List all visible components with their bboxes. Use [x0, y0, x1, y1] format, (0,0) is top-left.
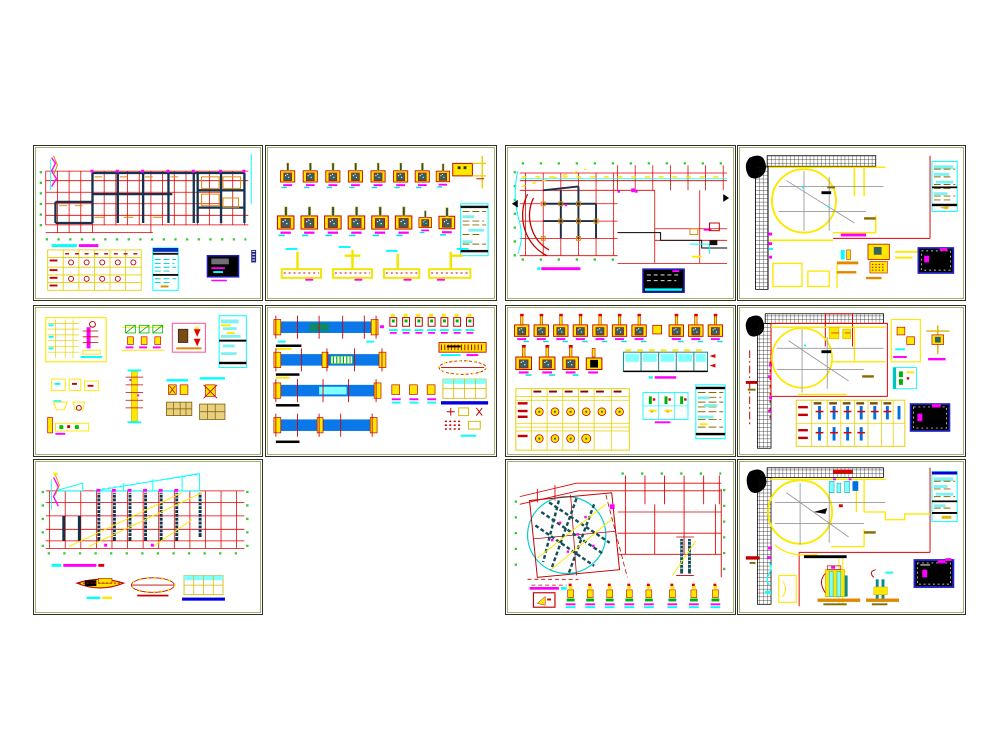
- sheet-inner-border: [507, 147, 734, 299]
- pier-row-2: [516, 345, 602, 376]
- stair-scribble: [52, 473, 60, 511]
- sheet-misc-structural-details: [33, 305, 263, 457]
- foundation-plan-drawing: [740, 148, 963, 298]
- footing-sections: [282, 246, 471, 281]
- right-detail-2: [200, 377, 225, 419]
- small-section-pairs: [392, 385, 436, 404]
- hatch-band-top: [765, 314, 883, 324]
- legend-strip-navy: [251, 250, 256, 263]
- sheet-curved-roof-plan: [505, 459, 736, 615]
- sheet-inner-border: [739, 307, 964, 455]
- notes-panel: [461, 204, 489, 256]
- grade-grid-gray: [779, 171, 884, 231]
- notes-panel: [696, 385, 725, 439]
- misc-marks: [804, 345, 874, 378]
- sheet-inner-border: [267, 307, 495, 455]
- yellow-dim-dashes: [522, 169, 725, 186]
- drawing-set-canvas: [0, 0, 1000, 751]
- hatch-band-top: [767, 156, 876, 167]
- hatch-band-top: [767, 468, 883, 478]
- sheet-foundation-details: [737, 459, 966, 615]
- hatch-band-left: [756, 166, 769, 289]
- foundation-outline-yellow: [768, 479, 930, 604]
- detail-figure-1: [818, 566, 861, 605]
- notes-panel: [153, 248, 178, 290]
- wall-elevation-detail: [623, 350, 715, 378]
- plan-title-text: [52, 244, 99, 247]
- right-column-details: [439, 343, 488, 437]
- column-schedule-drawing: [508, 308, 733, 454]
- title-block: [915, 558, 954, 587]
- sheet-column-schedule: [505, 305, 736, 457]
- match-line-red-dashed: [606, 495, 628, 578]
- column-pier-details-drawing: [268, 148, 494, 298]
- column-schedule-table: [516, 389, 629, 450]
- foundation-plan-schedule-drawing: [740, 308, 963, 454]
- boundary-red: [833, 156, 930, 239]
- detail-key-box: [533, 593, 555, 607]
- walls-dark: [543, 186, 596, 238]
- schedule-detail-3: [182, 575, 225, 600]
- foundation-outline-yellow: [769, 167, 885, 288]
- section-mark-red: [833, 470, 852, 474]
- stair-scribble: [51, 156, 58, 191]
- sheet-inner-border: [35, 307, 261, 455]
- detail-panel-yellow-right: [891, 320, 949, 362]
- sheet-inner-border: [267, 147, 495, 299]
- hatch-band-left: [757, 323, 771, 448]
- sheet-inner-border: [739, 461, 964, 613]
- beam-strip-3: [274, 379, 381, 406]
- sheet-inner-border: [35, 461, 261, 613]
- misc-details-drawing: [36, 308, 260, 454]
- plan-title-text: [530, 587, 567, 590]
- bracing-yellow: [69, 493, 201, 547]
- sheet-foundation-plan-schedule: [737, 305, 966, 457]
- sheet-inner-border: [507, 461, 734, 613]
- footing-detail-glyphs: [837, 244, 918, 279]
- sheet-inner-border: [507, 307, 734, 455]
- section-row-top: [389, 314, 474, 334]
- sheet-curved-wing-framing-plan: [505, 145, 736, 301]
- plan-title-text: [537, 267, 580, 270]
- sheet-roof-truss-framing: [33, 459, 263, 615]
- detail-panel-cyan-green: [893, 368, 916, 389]
- detail-glyph-row: [566, 584, 721, 609]
- detail-figure-2: [866, 570, 899, 606]
- hatch-band-left: [757, 477, 771, 604]
- beam-strip-2: [274, 348, 386, 378]
- sheet-floor-framing-plan: [33, 145, 263, 301]
- pier-row-1: [514, 314, 722, 342]
- cyan-boundary: [515, 171, 727, 254]
- footing-schedule-table: [796, 400, 905, 446]
- title-block: [643, 269, 684, 292]
- curved-roof-plan-drawing: [508, 462, 733, 612]
- mid-left-details: [52, 379, 99, 410]
- title-block: [911, 404, 950, 431]
- skewed-grid-red: [520, 475, 722, 577]
- notes-panel: [932, 472, 957, 522]
- foundation-outline-yellow: [771, 327, 885, 394]
- foundation-details-drawing: [740, 462, 963, 612]
- notes-panel-tall: [219, 316, 246, 368]
- sheet-inner-border: [35, 147, 261, 299]
- plan-title-text: [52, 564, 105, 567]
- beam-strip-1: [274, 316, 384, 350]
- wall-detail-orange: [59, 177, 240, 217]
- title-block: [918, 248, 953, 273]
- curved-wing-framing-plan-drawing: [508, 148, 733, 298]
- grid-bubbles-green: [516, 474, 724, 578]
- bottom-left-detail: [48, 418, 89, 435]
- beam-detail-2: [131, 578, 174, 597]
- property-line-red: [746, 350, 758, 427]
- title-block: [207, 256, 238, 282]
- detail-panel-c: [172, 323, 205, 352]
- right-detail-1: [167, 379, 192, 416]
- sheet-column-pier-details: [265, 145, 497, 301]
- beam-strip-4: [274, 414, 377, 443]
- beam-elevations-drawing: [268, 308, 494, 454]
- sheet-foundation-plan: [737, 145, 966, 301]
- sheet-inner-border: [739, 147, 964, 299]
- pier-glyphs-top: [829, 478, 858, 492]
- left-band-marks: [768, 233, 773, 259]
- pier-glyphs-top: [829, 327, 850, 339]
- truss-cyan: [55, 474, 199, 491]
- column-grid-red: [520, 165, 727, 263]
- pier-row-1: [281, 163, 450, 188]
- roof-truss-framing-drawing: [36, 462, 260, 612]
- section-wedge-right: [723, 194, 729, 202]
- rebar-mini-table: [643, 393, 688, 424]
- sheet-beam-elevations: [265, 305, 497, 457]
- details-title-black: [804, 555, 847, 558]
- beam-section-vertical: [126, 369, 144, 423]
- pier-row-2: [277, 207, 454, 236]
- details-title-magenta: [841, 234, 866, 237]
- corner-detail: [453, 156, 486, 189]
- beam-detail-1: [77, 578, 124, 599]
- detail-panel-a: [46, 318, 106, 362]
- notes-panel: [932, 161, 957, 211]
- footing-schedule-table: [48, 250, 141, 290]
- floor-framing-plan-drawing: [36, 148, 260, 298]
- detail-panel-b: [122, 325, 165, 350]
